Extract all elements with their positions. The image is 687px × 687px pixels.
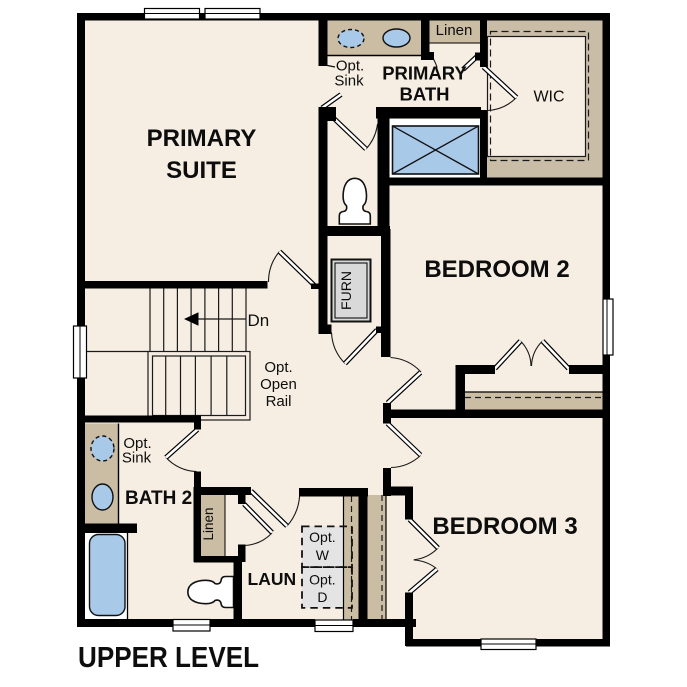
svg-text:SUITE: SUITE: [166, 157, 237, 184]
svg-text:Sink: Sink: [122, 450, 152, 467]
svg-text:Dn: Dn: [248, 311, 270, 330]
svg-text:Open: Open: [260, 376, 297, 393]
svg-text:BEDROOM 2: BEDROOM 2: [424, 256, 569, 283]
svg-text:Linen: Linen: [201, 507, 216, 540]
svg-text:Opt.: Opt.: [309, 572, 335, 588]
svg-text:BEDROOM 3: BEDROOM 3: [432, 513, 577, 540]
svg-text:Opt.: Opt.: [309, 529, 335, 545]
svg-text:Sink: Sink: [334, 73, 364, 90]
svg-text:UPPER LEVEL: UPPER LEVEL: [78, 642, 259, 674]
svg-text:BATH: BATH: [399, 84, 449, 105]
svg-text:FURN: FURN: [338, 271, 354, 310]
svg-text:BATH 2: BATH 2: [125, 488, 192, 509]
svg-text:WIC: WIC: [533, 89, 564, 106]
svg-text:Rail: Rail: [266, 393, 292, 410]
svg-text:Linen: Linen: [436, 22, 473, 39]
svg-text:PRIMARY: PRIMARY: [382, 63, 467, 84]
svg-text:Opt.: Opt.: [264, 359, 292, 376]
svg-text:PRIMARY: PRIMARY: [147, 125, 257, 152]
svg-text:LAUN: LAUN: [248, 569, 297, 589]
svg-text:W: W: [316, 547, 330, 563]
svg-text:D: D: [317, 589, 327, 605]
